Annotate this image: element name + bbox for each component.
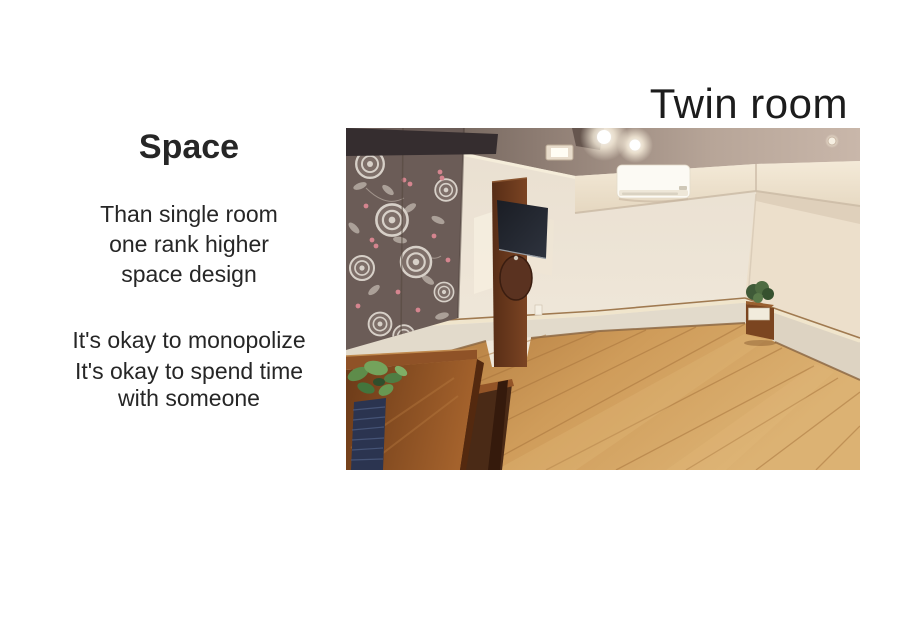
wall-outlet bbox=[535, 305, 542, 315]
slide: Twin room Space Than single room one ran… bbox=[0, 0, 900, 623]
text-line: It's okay to monopolize bbox=[29, 325, 349, 356]
space-description: Than single room one rank higher space d… bbox=[29, 199, 349, 289]
space-heading: Space bbox=[29, 128, 349, 167]
plant-basket bbox=[351, 398, 386, 470]
left-text-panel: Space Than single room one rank higher s… bbox=[29, 0, 349, 470]
room-photo bbox=[346, 128, 860, 470]
wall-niche-left bbox=[474, 212, 492, 294]
air-conditioner bbox=[617, 165, 690, 202]
text-line: It's okay to spend time bbox=[29, 356, 349, 387]
slide-title: Twin room bbox=[650, 80, 848, 128]
text-line: space design bbox=[29, 259, 349, 289]
text-line: Than single room bbox=[29, 199, 349, 229]
monopolize-description: It's okay to monopolize It's okay to spe… bbox=[29, 325, 349, 410]
text-line: one rank higher bbox=[29, 229, 349, 259]
round-mirror bbox=[500, 256, 532, 300]
room-photo-svg bbox=[346, 128, 860, 470]
text-line: with someone bbox=[29, 387, 349, 410]
